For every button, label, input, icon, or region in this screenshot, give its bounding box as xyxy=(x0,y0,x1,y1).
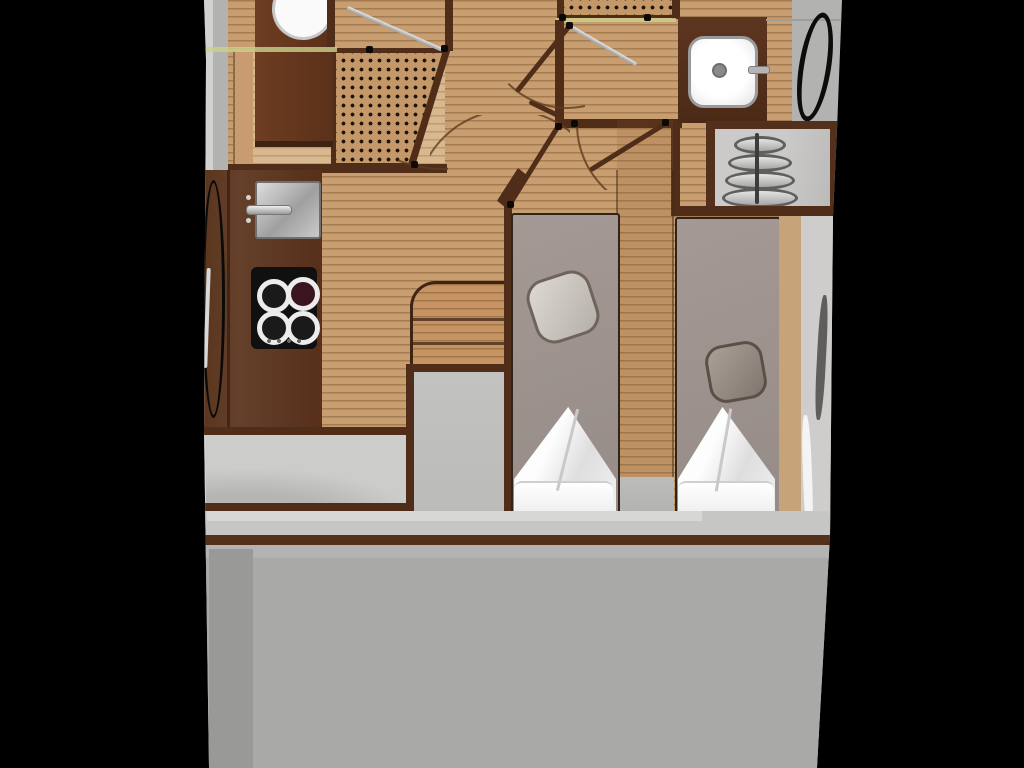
cabin-step-line-1 xyxy=(410,318,510,321)
midship-band-light xyxy=(207,511,702,521)
saloon-aft-wall xyxy=(203,503,415,511)
door-arc-forward-head xyxy=(398,138,448,172)
door-arc-cabin-port xyxy=(430,115,570,210)
stair-rail xyxy=(755,133,759,204)
hinge-dot-3 xyxy=(411,161,418,168)
hinge-dot-4 xyxy=(559,14,566,21)
cabin-step-line-2 xyxy=(410,342,510,345)
stair-step-4 xyxy=(722,188,798,208)
hinge-dot-6 xyxy=(566,22,573,29)
galley-counter-seam xyxy=(227,170,230,430)
accent-line-forward xyxy=(204,47,337,52)
galley-faucet-knob-b xyxy=(246,218,251,223)
hinge-dot-5 xyxy=(644,14,651,21)
forward-head-right-wall xyxy=(445,0,453,51)
accent-line-aft xyxy=(556,18,676,22)
hinge-dot-10 xyxy=(507,201,514,208)
stair-step-2 xyxy=(728,154,792,172)
aft-shower-grating xyxy=(564,0,672,16)
starboard-shelf-wood xyxy=(779,216,801,535)
cooktop-knobs xyxy=(266,339,304,344)
aft-deck-top-light xyxy=(203,545,838,558)
aft-deck-port-band xyxy=(209,549,253,768)
aft-deck xyxy=(203,545,838,768)
vanity-side-wall xyxy=(327,0,335,50)
aisle-edge-r xyxy=(672,170,674,477)
floorplan-stage xyxy=(0,0,1024,768)
hinge-dot-7 xyxy=(555,123,562,130)
yacht-floorplan xyxy=(0,0,1024,768)
locker-gray xyxy=(414,372,504,534)
cushion-starboard xyxy=(702,338,769,405)
stair-step-1 xyxy=(734,136,786,154)
hinge-dot-8 xyxy=(571,120,578,127)
washbasin-drain xyxy=(712,63,727,78)
door-arc-cabin-starboard xyxy=(575,120,670,190)
stairs-aft-wall xyxy=(680,206,838,216)
hinge-dot-2 xyxy=(441,45,448,52)
saloon-sole xyxy=(206,435,410,505)
forward-head-wall-strip xyxy=(233,51,253,165)
hinge-dot-9 xyxy=(662,119,669,126)
washbasin-faucet xyxy=(748,66,770,74)
cabin-steps xyxy=(410,281,513,371)
locker-top-wall xyxy=(406,364,512,372)
burner-2 xyxy=(286,277,320,311)
galley-faucet xyxy=(246,205,292,215)
hinge-dot-1 xyxy=(366,46,373,53)
galley-aft-wall xyxy=(203,427,415,435)
galley-faucet-knob-a xyxy=(246,195,251,200)
bulkhead-aft xyxy=(203,535,838,545)
